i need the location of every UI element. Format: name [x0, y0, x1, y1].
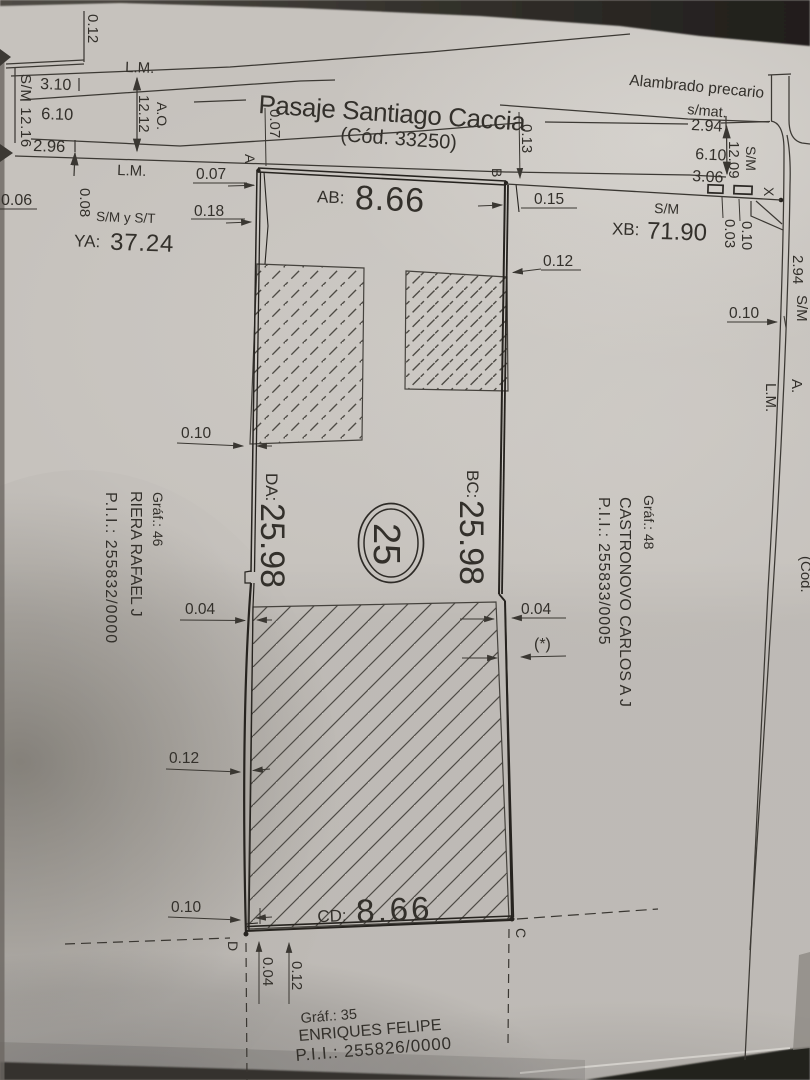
svg-text:0.18: 0.18	[194, 203, 224, 220]
svg-text:3.06: 3.06	[692, 168, 724, 187]
svg-text:D: D	[225, 941, 241, 951]
svg-text:CD:: CD:	[317, 906, 347, 926]
svg-text:A.: A.	[788, 379, 805, 393]
svg-text:0.07: 0.07	[266, 109, 283, 138]
svg-text:25.98: 25.98	[452, 500, 490, 585]
svg-text:0.13: 0.13	[518, 124, 535, 153]
svg-text:0.10: 0.10	[738, 221, 755, 250]
svg-text:0.04: 0.04	[521, 601, 552, 618]
svg-text:S/M: S/M	[654, 200, 679, 217]
svg-text:6.10: 6.10	[41, 105, 74, 124]
svg-text:0.10: 0.10	[181, 425, 212, 442]
svg-text:2.96: 2.96	[33, 137, 66, 156]
svg-text:L.M.: L.M.	[117, 162, 147, 180]
svg-text:AB:: AB:	[317, 187, 345, 207]
svg-text:25.98: 25.98	[253, 503, 291, 588]
svg-text:Gráf.: 48: Gráf.: 48	[641, 495, 657, 550]
svg-text:P.I.I.: 255832/0000: P.I.I.: 255832/0000	[102, 492, 119, 644]
svg-text:C: C	[513, 928, 529, 938]
svg-text:S/M 12.16: S/M 12.16	[17, 74, 34, 148]
svg-text:8.66: 8.66	[355, 889, 433, 929]
svg-text:8.66: 8.66	[354, 179, 426, 220]
svg-text:B: B	[489, 168, 505, 177]
svg-text:71.90: 71.90	[646, 218, 707, 247]
svg-text:0.06: 0.06	[1, 192, 32, 209]
svg-text:0.12: 0.12	[543, 253, 573, 270]
svg-text:Gráf.: 46: Gráf.: 46	[150, 492, 166, 547]
svg-text:(*): (*)	[534, 636, 551, 653]
svg-text:12.12: 12.12	[135, 95, 152, 133]
svg-text:12.09: 12.09	[725, 141, 742, 179]
svg-text:L.M.: L.M.	[762, 383, 779, 412]
svg-text:A: A	[242, 154, 258, 164]
svg-text:DA:: DA:	[262, 473, 281, 501]
svg-text:S/M y S/T: S/M y S/T	[96, 209, 156, 226]
svg-text:0.12: 0.12	[84, 14, 101, 43]
svg-text:3.10: 3.10	[40, 76, 72, 94]
svg-text:0.12: 0.12	[288, 961, 305, 990]
svg-text:6.10: 6.10	[695, 146, 727, 165]
svg-text:RIERA RAFAEL J: RIERA RAFAEL J	[127, 491, 144, 617]
svg-text:0.04: 0.04	[185, 601, 216, 618]
svg-text:0.15: 0.15	[534, 191, 564, 208]
svg-text:S/M: S/M	[793, 295, 810, 322]
svg-text:(Cód.: (Cód.	[797, 556, 810, 593]
svg-text:0.07: 0.07	[196, 166, 226, 183]
svg-text:25: 25	[365, 523, 407, 565]
svg-text:2.94: 2.94	[691, 117, 723, 136]
svg-text:0.10: 0.10	[171, 899, 202, 916]
svg-text:CASTRONOVO CARLOS A J: CASTRONOVO CARLOS A J	[616, 497, 633, 707]
svg-text:0.12: 0.12	[169, 750, 199, 767]
svg-text:L.M.: L.M.	[125, 59, 155, 77]
svg-text:0.04: 0.04	[259, 957, 276, 986]
svg-text:XB:: XB:	[612, 219, 640, 239]
svg-text:37.24: 37.24	[110, 229, 175, 258]
svg-text:0.08: 0.08	[76, 188, 93, 217]
svg-text:X: X	[761, 187, 777, 197]
svg-text:0.03: 0.03	[721, 219, 738, 248]
svg-text:BC:: BC:	[463, 470, 482, 498]
svg-text:YA:: YA:	[74, 231, 101, 251]
svg-text:0.10: 0.10	[729, 305, 760, 322]
svg-text:2.94: 2.94	[789, 255, 806, 284]
svg-text:S/M: S/M	[743, 146, 759, 171]
svg-text:A.O.: A.O.	[154, 102, 170, 130]
svg-text:P.I.I.: 255833/0005: P.I.I.: 255833/0005	[595, 497, 612, 645]
